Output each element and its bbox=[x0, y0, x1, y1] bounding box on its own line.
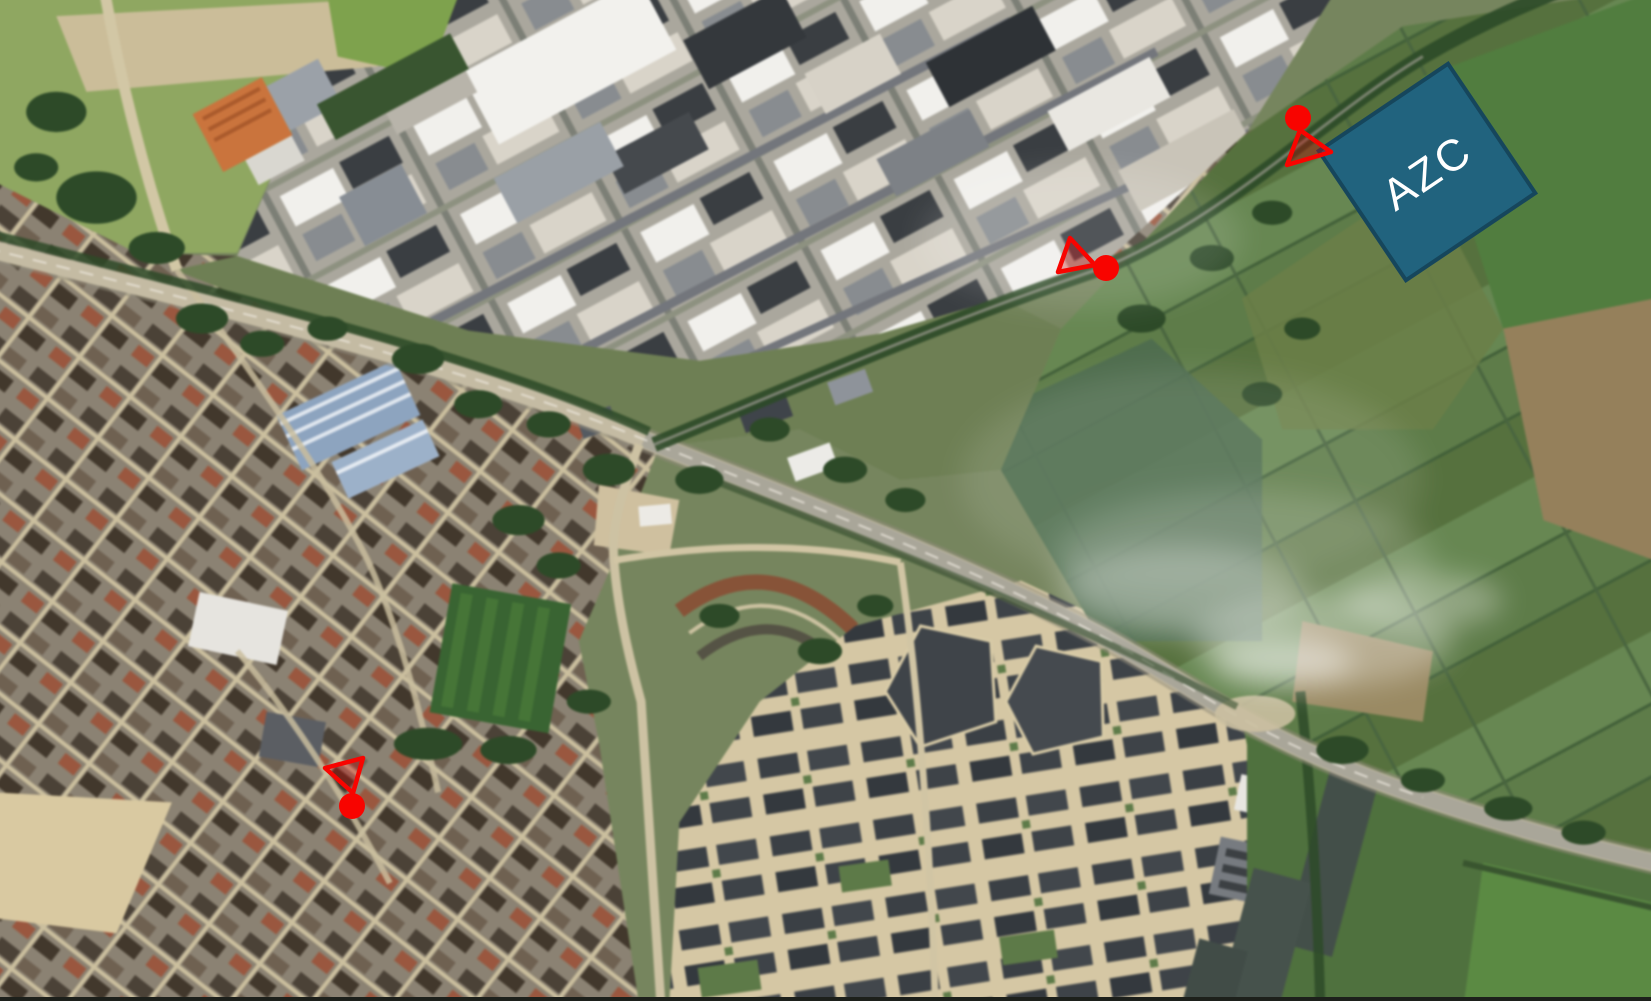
aerial-map-image: AZC bbox=[0, 0, 1651, 1001]
azc-site-annotation: AZC bbox=[1319, 64, 1536, 281]
marker-town-centre bbox=[325, 758, 365, 819]
marker-industrial-road bbox=[1058, 238, 1119, 281]
marker-north-near-azc-dot bbox=[1285, 105, 1311, 131]
marker-town-centre-dot bbox=[339, 793, 365, 819]
marker-industrial-road-dot bbox=[1093, 255, 1119, 281]
marker-industrial-road-view-cone bbox=[1058, 238, 1095, 272]
marker-north-near-azc bbox=[1285, 105, 1331, 165]
annotation-overlay: AZC bbox=[0, 0, 1651, 1001]
location-markers bbox=[325, 105, 1331, 819]
marker-town-centre-view-cone bbox=[325, 758, 363, 793]
